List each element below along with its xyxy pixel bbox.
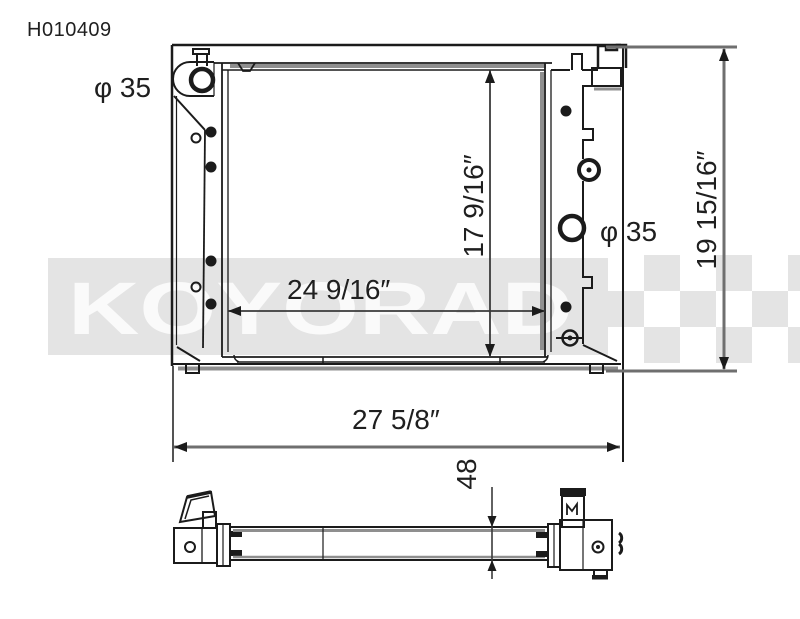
side-core xyxy=(230,527,548,560)
front-view xyxy=(172,45,626,462)
outlet-port-circle xyxy=(560,216,584,240)
dim-overall-width: 27 5/8″ xyxy=(352,404,440,435)
watermark: KOYORAD xyxy=(48,255,800,363)
dim-core-thickness: 48 xyxy=(451,458,482,489)
watermark-checkerboard xyxy=(608,255,800,363)
dim-core-width: 24 9/16″ xyxy=(287,274,390,305)
dim-overall-height: 19 15/16″ xyxy=(691,150,722,269)
radiator-drawing: KOYORAD xyxy=(0,0,800,619)
part-number: H010409 xyxy=(27,19,112,41)
dim-core-height: 17 9/16″ xyxy=(458,154,489,257)
filler-cap xyxy=(193,49,209,54)
side-right-knob xyxy=(619,533,622,554)
technical-drawing-page: KOYORAD xyxy=(0,0,800,619)
right-tank xyxy=(551,45,626,462)
side-right-bracket-cap xyxy=(560,488,586,496)
side-view xyxy=(174,488,622,580)
dim-right-port-diameter: φ 35 xyxy=(600,216,657,247)
right-stub xyxy=(572,54,582,70)
dim-filler-diameter: φ 35 xyxy=(94,72,151,103)
filler-neck-circle xyxy=(191,69,213,91)
